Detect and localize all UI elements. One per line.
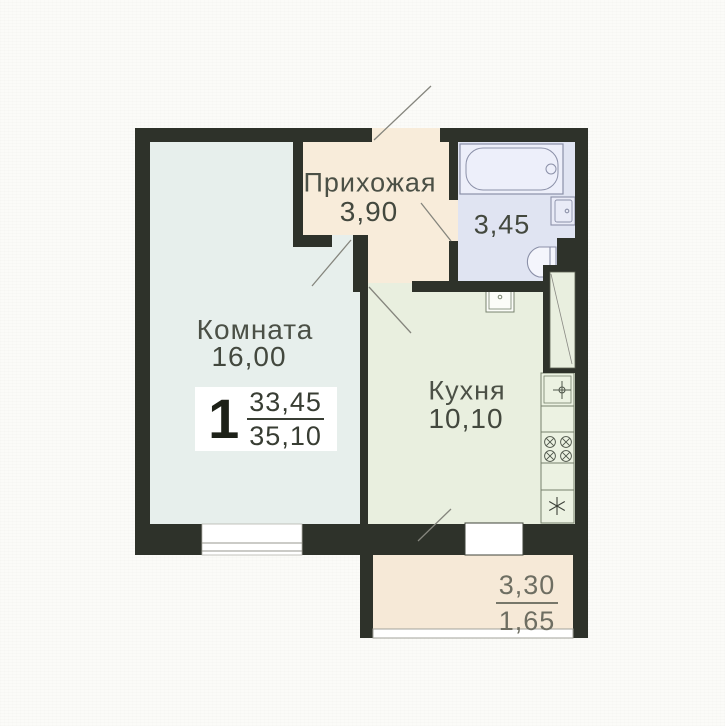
- wall-hallway-bottom: [293, 235, 332, 247]
- hallway-label: Прихожая: [303, 168, 436, 199]
- wall-balcony-left: [360, 555, 373, 638]
- total-area-value: 35,10: [247, 420, 324, 451]
- wall-under-bathroom: [412, 281, 557, 292]
- wall-hallway-left: [293, 142, 303, 247]
- area-fraction: 33,45 35,10: [247, 387, 324, 451]
- wall-divider-upper: [353, 235, 368, 292]
- bathroom-sink-icon: [551, 197, 575, 225]
- kitchen-area: 10,10: [428, 403, 503, 435]
- bathroom-area: 3,45: [474, 210, 531, 241]
- living-room-area: 16,00: [211, 341, 286, 373]
- balcony-area-full: 3,30: [496, 570, 558, 604]
- balcony-door-window: [465, 523, 523, 555]
- apartment-info-badge: 1 33,45 35,10: [195, 387, 337, 451]
- living-room-window: [202, 524, 302, 555]
- room-count: 1: [208, 394, 239, 444]
- floor-plan-drawing: [0, 0, 725, 726]
- hallway-floor-lower: [368, 235, 458, 283]
- wall-bathroom-left-upper: [449, 142, 458, 200]
- living-room-floor: [150, 142, 293, 247]
- wall-divider-lower: [360, 292, 368, 524]
- floor-plan-page: Прихожая 3,90 Комната 16,00 Кухня 10,10 …: [0, 0, 725, 726]
- bathtub-icon: [460, 144, 563, 194]
- entrance-opening: [372, 128, 440, 142]
- kitchen-label: Кухня: [428, 376, 505, 407]
- wall-top-right: [440, 128, 588, 142]
- wall-top-left: [135, 128, 372, 142]
- hallway-area: 3,90: [340, 196, 399, 228]
- wall-left: [135, 128, 150, 555]
- balcony-area-reduced: 1,65: [496, 604, 558, 637]
- balcony-area-fraction: 3,30 1,65: [496, 570, 558, 637]
- living-room-floor-main: [150, 247, 360, 524]
- wall-balcony-right: [573, 555, 588, 638]
- living-area-value: 33,45: [247, 387, 324, 420]
- ventilation-shaft: [550, 272, 575, 368]
